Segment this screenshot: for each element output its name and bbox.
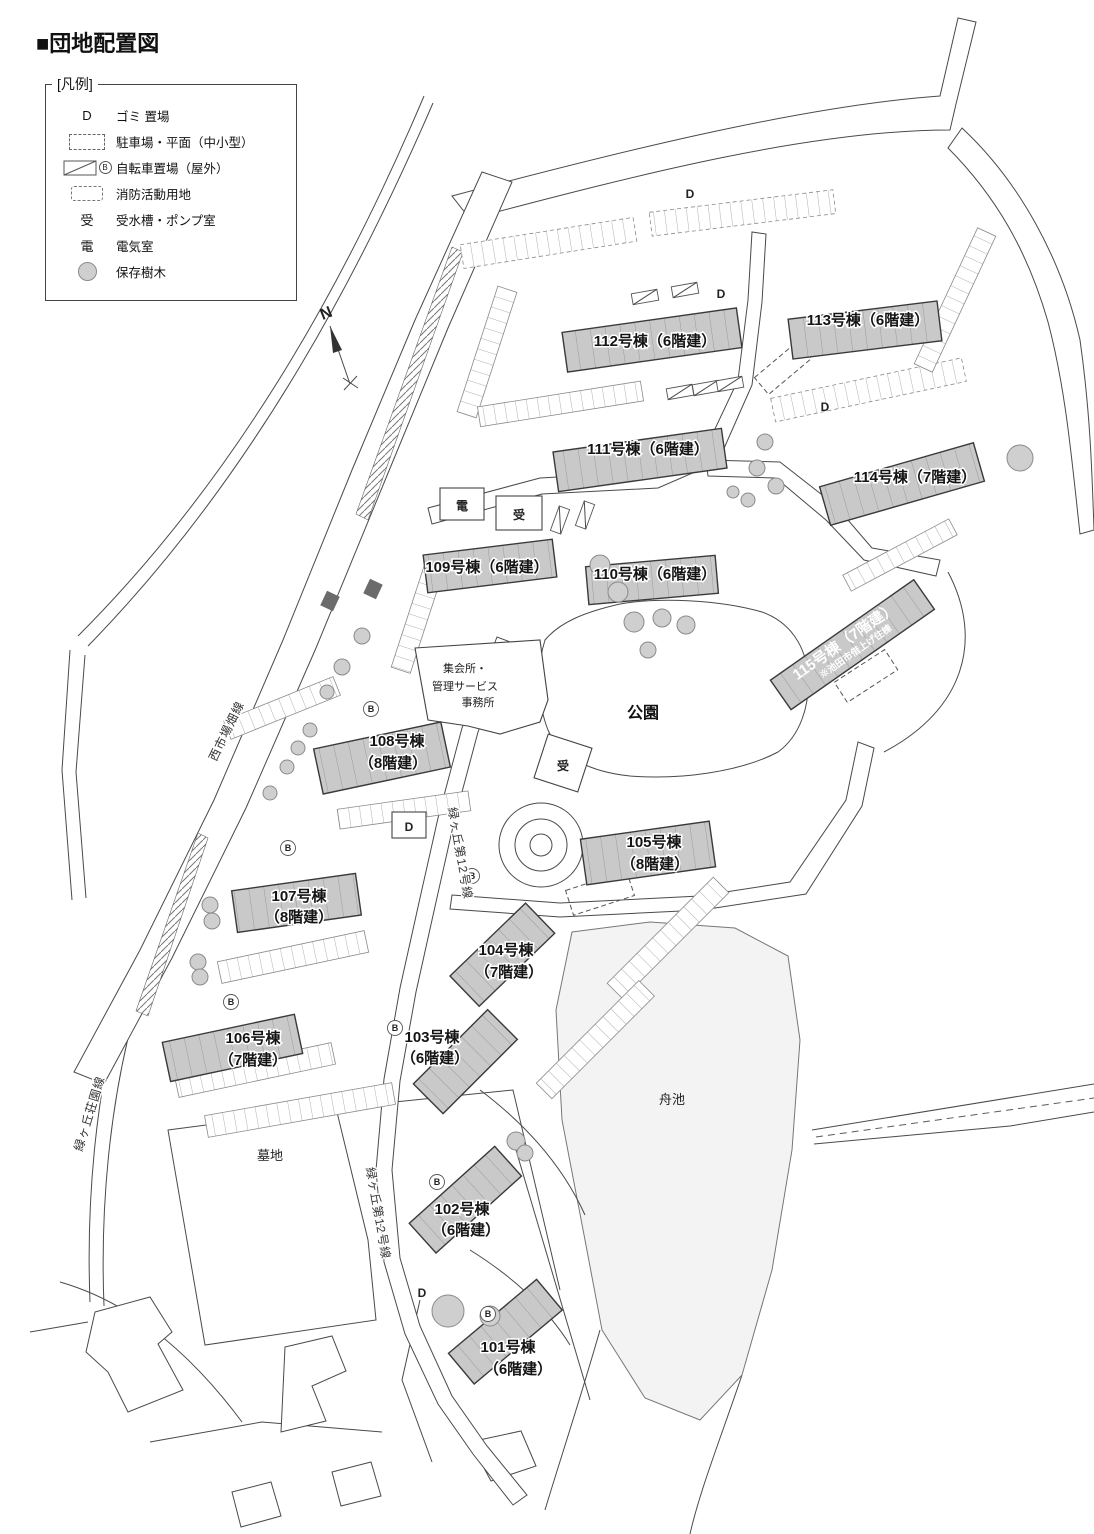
- electric-symbol: 電: [80, 236, 93, 255]
- garbage-symbol: D: [82, 108, 91, 123]
- svg-text:104号棟: 104号棟: [478, 941, 534, 959]
- svg-text:（8階建）: （8階建）: [359, 754, 427, 772]
- office-label: 事務所: [462, 695, 495, 709]
- water-symbol: 受: [80, 210, 93, 229]
- road-name: 緑ヶ丘荘園線: [71, 1074, 108, 1153]
- svg-text:（8階建）: （8階建）: [265, 908, 333, 926]
- parking-symbol-icon: [69, 134, 105, 150]
- page-title: ■団地配置図: [36, 26, 159, 58]
- embankment-hatch-1: [356, 247, 463, 520]
- svg-text:106号棟: 106号棟: [225, 1029, 281, 1047]
- svg-text:（6階建）: （6階建）: [432, 1221, 500, 1239]
- svg-text:（7階建）: （7階建）: [219, 1051, 287, 1069]
- road-top: [452, 18, 976, 219]
- svg-text:B: B: [228, 997, 235, 1007]
- svg-text:B: B: [392, 1023, 399, 1033]
- bicycle-marker: B: [224, 995, 239, 1010]
- fire-symbol-icon: [71, 186, 103, 201]
- garbage-marker: D: [821, 400, 830, 414]
- svg-text:113号棟（6階建）: 113号棟（6階建）: [807, 311, 930, 329]
- legend-row-garbage: D ゴミ 置場: [58, 106, 286, 125]
- water-marker: 受: [557, 758, 569, 773]
- bicycle-marker: B: [481, 1307, 496, 1322]
- north-label: N: [318, 304, 335, 324]
- office-label: 管理サービス: [432, 679, 498, 693]
- legend-row-tree: 保存樹木: [58, 262, 286, 281]
- pond-funaike: [556, 922, 800, 1420]
- svg-text:B: B: [285, 843, 292, 853]
- legend-row-bicycle: B 自転車置場（屋外）: [58, 158, 286, 177]
- road-name: 緑ヶ丘第12号線: [445, 806, 476, 901]
- bicycle-marker: B: [430, 1175, 445, 1190]
- garbage-marker: D: [405, 820, 414, 834]
- garbage-marker: D: [686, 187, 695, 201]
- legend: [凡例] D ゴミ 置場 駐車場・平面（中小型） B 自転車置場（屋外） 消防活…: [45, 84, 297, 301]
- svg-text:109号棟（6階建）: 109号棟（6階建）: [425, 558, 548, 576]
- garbage-marker: D: [717, 287, 726, 301]
- circled-b-icon: B: [99, 161, 112, 174]
- garbage-marker: D: [418, 1286, 427, 1300]
- svg-text:107号棟: 107号棟: [271, 887, 327, 905]
- svg-text:B: B: [434, 1177, 441, 1187]
- svg-text:112号棟（6階建）: 112号棟（6階建）: [594, 332, 717, 350]
- legend-row-parking: 駐車場・平面（中小型）: [58, 132, 286, 151]
- north-arrow: N: [318, 304, 358, 390]
- svg-text:（6階建）: （6階建）: [484, 1360, 552, 1378]
- pond-label: 舟池: [659, 1092, 685, 1107]
- site-plan-page: N D D D D D B B B B B B B 電 受 受 公園 舟池 墓地…: [0, 0, 1094, 1534]
- bicycle-marker: B: [388, 1021, 403, 1036]
- embankment-hatch-2: [136, 833, 208, 1016]
- svg-text:B: B: [485, 1309, 492, 1319]
- svg-text:110号棟（6階建）: 110号棟（6階建）: [594, 565, 717, 583]
- water-marker: 受: [513, 507, 525, 522]
- building-105: [580, 821, 715, 885]
- legend-title: [凡例]: [52, 74, 98, 94]
- svg-text:（8階建）: （8階建）: [621, 855, 689, 873]
- svg-text:101号棟: 101号棟: [480, 1338, 536, 1356]
- svg-text:111号棟（6階建）: 111号棟（6階建）: [587, 440, 709, 458]
- bicycle-marker: B: [281, 841, 296, 856]
- bicycle-symbol-icon: [63, 160, 97, 176]
- svg-text:（7階建）: （7階建）: [475, 963, 543, 981]
- park-label: 公園: [627, 704, 659, 722]
- svg-text:105号棟: 105号棟: [626, 833, 682, 851]
- svg-text:108号棟: 108号棟: [369, 732, 425, 750]
- tree-symbol-icon: [78, 262, 97, 281]
- svg-text:103号棟: 103号棟: [404, 1028, 460, 1046]
- legend-row-fire: 消防活動用地: [58, 184, 286, 203]
- office-label: 集会所・: [443, 661, 487, 675]
- legend-row-electric: 電 電気室: [58, 236, 286, 255]
- bicycle-marker: B: [364, 702, 379, 717]
- legend-row-water: 受 受水槽・ポンプ室: [58, 210, 286, 229]
- svg-text:（6階建）: （6階建）: [401, 1049, 469, 1067]
- cemetery-label: 墓地: [257, 1148, 283, 1163]
- building-113: [788, 301, 942, 359]
- electric-marker: 電: [456, 499, 468, 513]
- svg-text:114号棟（7階建）: 114号棟（7階建）: [854, 468, 977, 486]
- svg-text:102号棟: 102号棟: [434, 1200, 490, 1218]
- svg-text:B: B: [368, 704, 375, 714]
